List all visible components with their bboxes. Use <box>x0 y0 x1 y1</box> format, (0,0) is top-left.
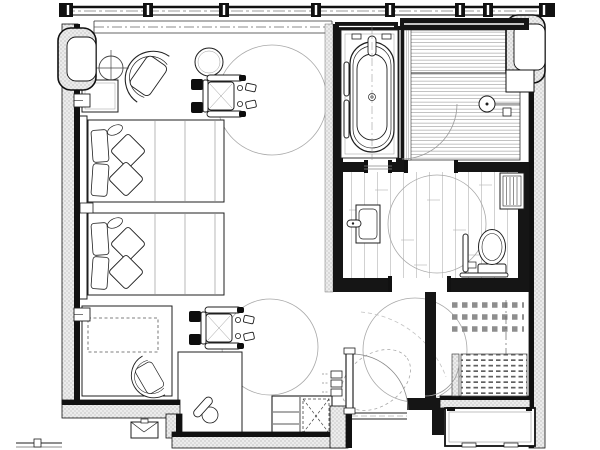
window-wall <box>59 3 555 17</box>
floor-plan-sheet <box>0 0 600 450</box>
top-left-column <box>58 28 96 90</box>
door-hinge-top <box>344 348 355 354</box>
closet-west-wall <box>425 292 436 398</box>
tub-handle-left <box>352 34 361 39</box>
adjacent-structure-line <box>16 439 62 447</box>
toilet-grab-bar-vertical <box>463 234 468 272</box>
shower-linear-drain <box>404 30 411 160</box>
vestibule-top-wall-face <box>440 396 530 400</box>
entry-door-arc <box>352 354 408 410</box>
toilet-grab-bar-horizontal <box>460 273 508 277</box>
vestibule <box>445 407 535 447</box>
turning-circle-entry <box>363 298 467 402</box>
entry-door-leaf <box>346 352 353 410</box>
twin-bed-2 <box>78 209 224 299</box>
desk <box>178 352 242 438</box>
wall-outlet-box-bottom <box>74 308 90 321</box>
wheelchair-symbol-top <box>191 75 257 117</box>
curtain-track <box>94 21 332 33</box>
bottom-wall-face <box>172 432 348 437</box>
bathtub-alcove <box>341 26 398 169</box>
wall-nightstand <box>80 203 93 213</box>
wheelchair-symbol-bottom <box>189 307 255 349</box>
closet-divider <box>452 354 459 396</box>
grab-bar-1 <box>344 62 349 96</box>
shower-slatted-floor <box>404 30 520 160</box>
tub-handle-right <box>382 34 391 39</box>
floor-outlet-box <box>131 419 158 438</box>
closet-grid-mat <box>461 354 527 396</box>
bottom-left-wall-face <box>62 400 180 405</box>
closet <box>425 300 527 396</box>
wall-outlet-box-top <box>74 94 90 107</box>
door-hinge-bottom <box>344 408 355 414</box>
shower-seat-niche <box>506 70 534 92</box>
floor-plan-canvas <box>0 0 600 450</box>
round-side-table <box>195 48 223 76</box>
entry-east-wall-return <box>432 410 444 435</box>
toilet <box>478 230 506 278</box>
lounge-chair <box>114 40 174 105</box>
towel-shelf <box>500 173 524 209</box>
entry-east-wall <box>407 398 445 410</box>
shower-valve <box>503 108 511 116</box>
light-switch-stack <box>322 371 342 396</box>
twin-bed-1 <box>78 116 224 206</box>
furniture <box>78 40 332 438</box>
paper-holder <box>468 262 476 268</box>
grab-bar-2 <box>344 100 349 138</box>
